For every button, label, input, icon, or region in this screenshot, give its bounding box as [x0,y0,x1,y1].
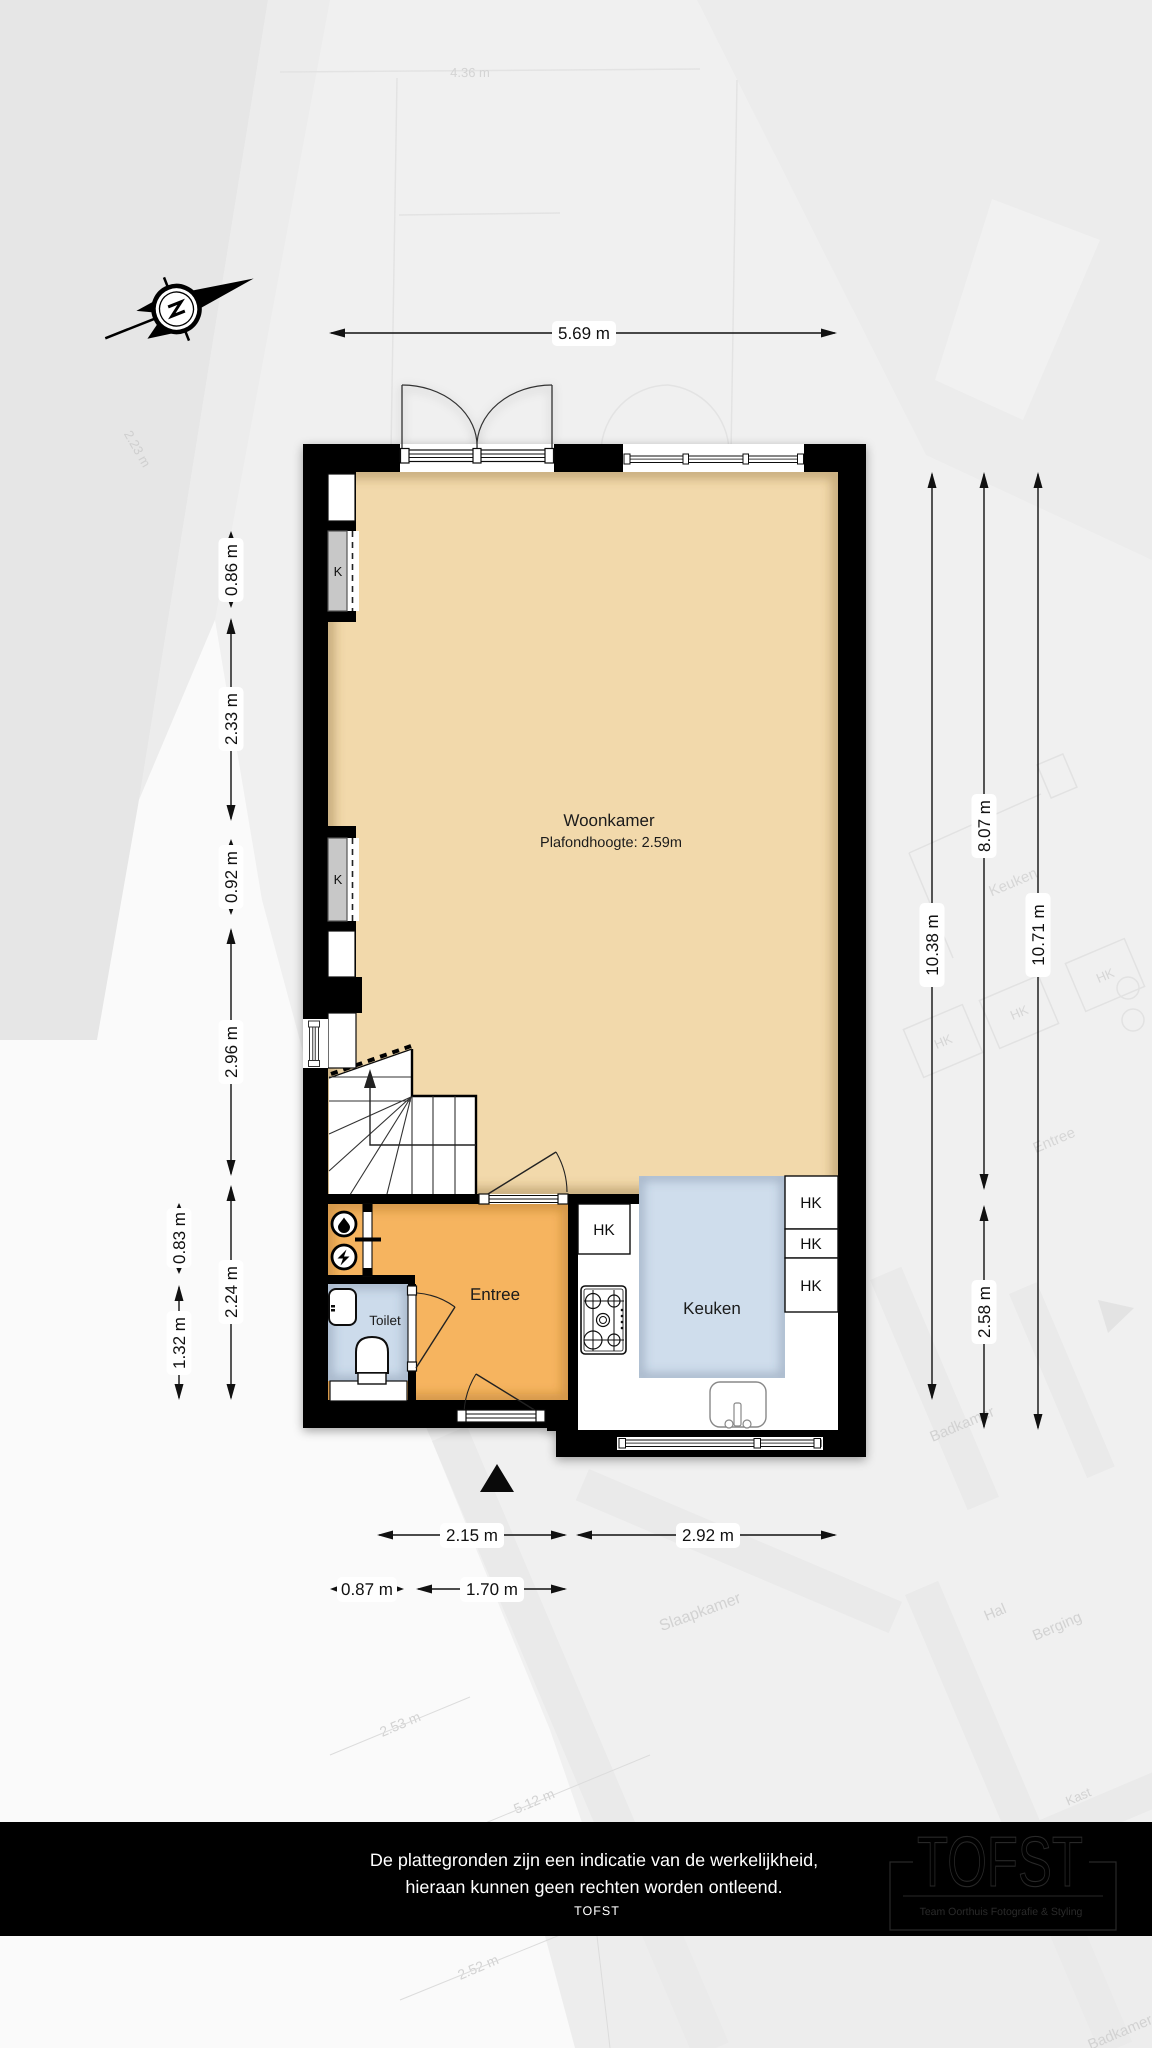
svg-text:TOFST: TOFST [917,1823,1083,1902]
svg-text:2.96 m: 2.96 m [222,1026,241,1078]
svg-text:hieraan kunnen geen rechten wo: hieraan kunnen geen rechten worden ontle… [405,1877,782,1897]
svg-text:1.32 m: 1.32 m [170,1317,189,1369]
svg-text:K: K [334,872,343,887]
svg-text:Team Oorthuis Fotografie & Sty: Team Oorthuis Fotografie & Styling [920,1906,1083,1918]
svg-text:2.33 m: 2.33 m [222,693,241,745]
svg-text:Entree: Entree [470,1285,520,1304]
svg-text:0.92 m: 0.92 m [222,851,241,903]
svg-text:HK: HK [800,1236,822,1253]
svg-text:2.15 m: 2.15 m [446,1526,498,1545]
svg-text:0.86 m: 0.86 m [222,544,241,596]
svg-text:1.70 m: 1.70 m [466,1580,518,1599]
svg-text:Keuken: Keuken [683,1299,741,1318]
svg-text:K: K [334,564,343,579]
svg-text:HK: HK [593,1222,615,1239]
svg-text:10.71 m: 10.71 m [1029,904,1048,965]
svg-text:Woonkamer: Woonkamer [563,811,655,830]
svg-text:10.38 m: 10.38 m [923,914,942,975]
svg-text:Plafondhoogte: 2.59m: Plafondhoogte: 2.59m [540,835,682,851]
svg-text:2.24 m: 2.24 m [222,1266,241,1318]
svg-text:Toilet: Toilet [369,1313,401,1328]
svg-text:4.36 m: 4.36 m [450,65,490,80]
svg-text:0.83 m: 0.83 m [170,1212,189,1264]
svg-text:2.92 m: 2.92 m [682,1526,734,1545]
svg-text:5.69 m: 5.69 m [558,324,610,343]
svg-text:2.58 m: 2.58 m [975,1286,994,1338]
svg-text:De plattegronden zijn een indi: De plattegronden zijn een indicatie van … [370,1850,818,1870]
svg-text:0.87 m: 0.87 m [341,1580,393,1599]
svg-text:TOFST: TOFST [574,1904,620,1918]
svg-text:HK: HK [800,1278,822,1295]
svg-text:8.07 m: 8.07 m [975,800,994,852]
svg-text:HK: HK [800,1195,822,1212]
